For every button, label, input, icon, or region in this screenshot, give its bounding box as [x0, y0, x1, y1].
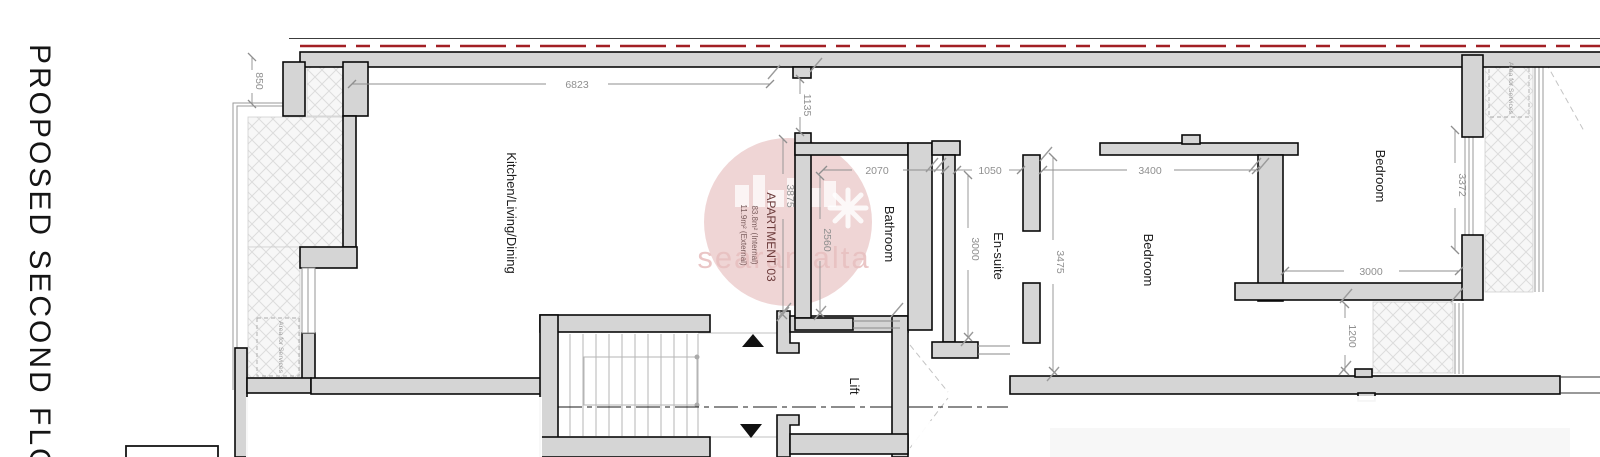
room-label-kitchen: Kitchen/Living/Dining [504, 152, 519, 273]
dim-kitchen-length: 6823 [565, 79, 589, 91]
room-label-bathroom: Bathroom [882, 206, 897, 262]
dim-shaft-width: 1200 [1346, 324, 1358, 348]
dim-hall-opening: 1135 [801, 94, 813, 117]
wall-corridor [1010, 376, 1560, 394]
dim-ensuite-width: 1050 [978, 165, 1002, 177]
dim-bathroom-width: 2070 [865, 165, 889, 177]
room-label-bedroom-middle: Bedroom [1141, 234, 1156, 287]
watermark-text: searamalta [697, 240, 870, 275]
apartment-internal-area: 83.8m² (Internal) [750, 205, 759, 264]
dim-bedroom-middle-depth: 3475 [1054, 250, 1066, 274]
apartment-external-area: 11.9m² (External) [739, 204, 748, 266]
floor-plan-sheet: searamalta [0, 0, 1600, 457]
stair-down-arrow-icon [740, 424, 762, 438]
windmill-icon [830, 190, 866, 226]
service-area-label-left: Area for Services [277, 321, 284, 374]
dim-kitchen-depth: 3875 [784, 184, 796, 208]
staircase [570, 333, 777, 437]
dim-bedroom-right-depth: 3372 [1456, 173, 1468, 197]
room-label-lift: Lift [847, 377, 862, 395]
stair-up-arrow-icon [742, 334, 764, 347]
room-label-ensuite: En-suite [991, 232, 1006, 280]
wall-top [300, 52, 1600, 67]
dim-bedroom-middle-width: 3400 [1138, 165, 1162, 177]
dim-terrace-width: 850 [253, 72, 265, 90]
service-area-label-right: Area for Services [1507, 62, 1514, 115]
dim-bathroom-depth: 2560 [821, 228, 833, 252]
sheet-crop-overlay [246, 396, 1600, 457]
dim-bedroom-right-width: 3000 [1359, 266, 1383, 278]
wall-stairwell [540, 315, 710, 332]
dim-ensuite-depth: 3000 [969, 237, 981, 261]
floor-plan-svg: searamalta [0, 0, 1600, 457]
watermark-logo: searamalta [697, 138, 872, 306]
room-label-bedroom-right: Bedroom [1373, 150, 1388, 203]
sheet-title: PROPOSED SECOND FLOO [23, 44, 56, 457]
apartment-name: APARTMENT 03 [764, 192, 778, 282]
